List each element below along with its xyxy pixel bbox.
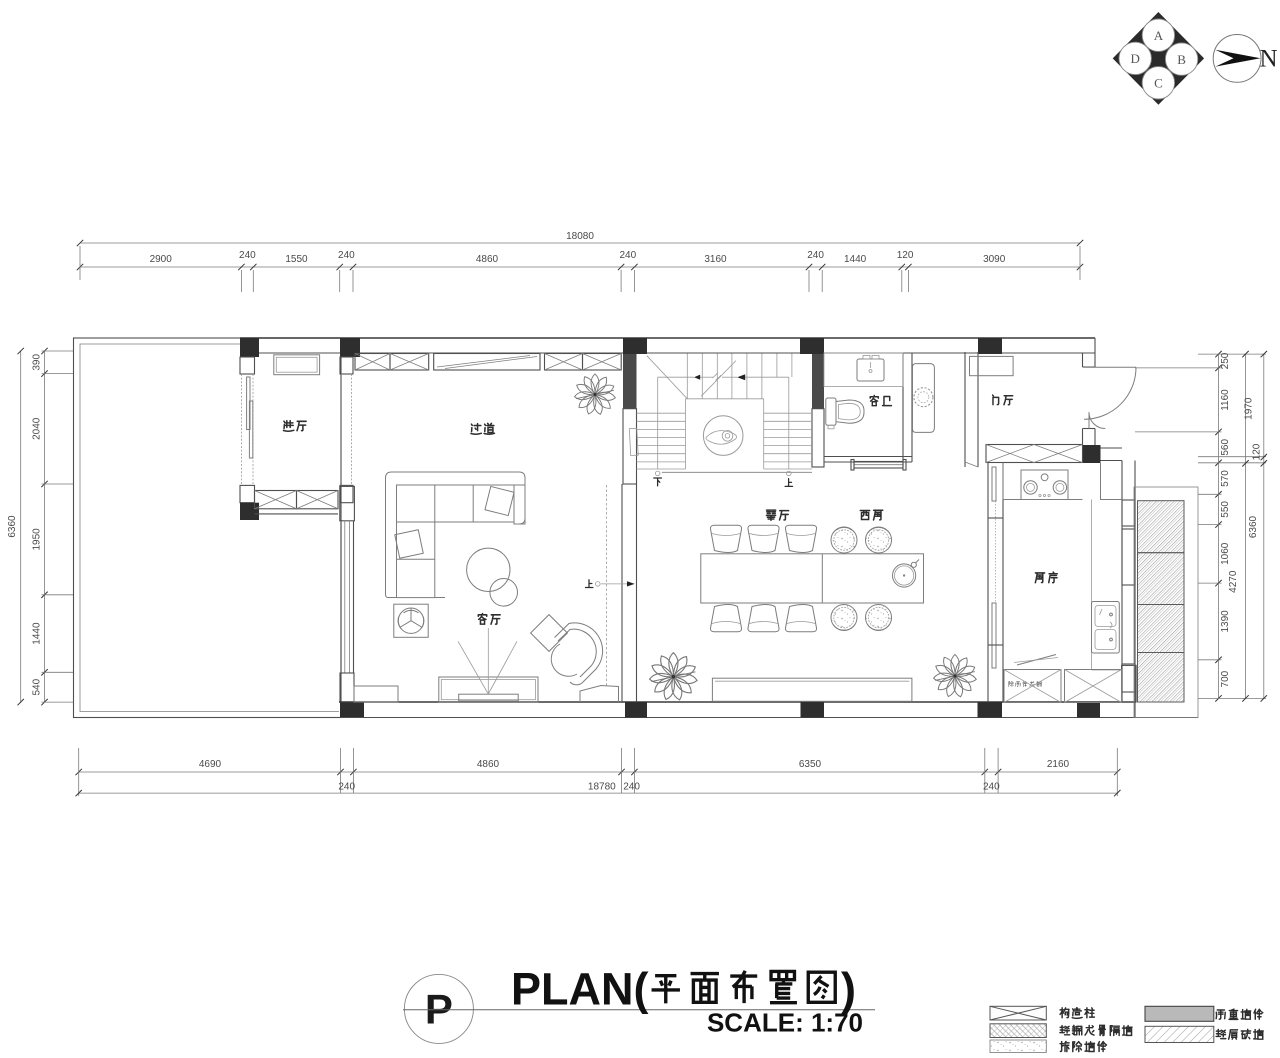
svg-text:240: 240	[239, 250, 256, 261]
svg-text:6360: 6360	[1248, 515, 1259, 538]
svg-text:2900: 2900	[150, 254, 173, 265]
svg-text:240: 240	[619, 250, 636, 261]
svg-text:3090: 3090	[983, 254, 1006, 265]
svg-text:570: 570	[1220, 470, 1231, 487]
svg-text:2040: 2040	[32, 417, 43, 440]
svg-text:18080: 18080	[566, 231, 594, 242]
svg-text:D: D	[1131, 51, 1140, 66]
svg-text:1950: 1950	[32, 528, 43, 551]
svg-text:1160: 1160	[1220, 389, 1231, 411]
svg-text:1440: 1440	[844, 254, 867, 265]
svg-text:4860: 4860	[477, 759, 500, 770]
svg-text:PLAN(: PLAN(	[511, 964, 648, 1015]
svg-text:1440: 1440	[32, 622, 43, 645]
svg-text:1970: 1970	[1244, 397, 1255, 420]
svg-text:240: 240	[807, 250, 824, 261]
svg-text:N: N	[1259, 46, 1277, 73]
svg-text:240: 240	[623, 782, 640, 793]
svg-text:C: C	[1154, 76, 1163, 91]
svg-text:3160: 3160	[704, 254, 727, 265]
svg-text:250: 250	[1220, 352, 1231, 369]
svg-text:1550: 1550	[285, 254, 308, 265]
svg-text:4690: 4690	[199, 759, 222, 770]
svg-text:A: A	[1154, 28, 1164, 43]
svg-text:6360: 6360	[7, 515, 18, 538]
svg-text:4860: 4860	[476, 254, 499, 265]
svg-text:390: 390	[32, 354, 43, 371]
svg-text:120: 120	[897, 250, 914, 261]
svg-text:B: B	[1177, 52, 1186, 67]
svg-text:240: 240	[983, 782, 1000, 793]
svg-text:1060: 1060	[1220, 542, 1231, 565]
svg-text:6350: 6350	[799, 759, 822, 770]
svg-text:540: 540	[32, 678, 43, 695]
svg-text:240: 240	[338, 250, 355, 261]
svg-text:240: 240	[338, 782, 355, 793]
svg-text:700: 700	[1220, 670, 1231, 687]
svg-text:1390: 1390	[1220, 610, 1231, 633]
svg-text:SCALE: 1:70: SCALE: 1:70	[707, 1008, 863, 1038]
svg-text:P: P	[425, 986, 453, 1033]
svg-text:120: 120	[1252, 443, 1263, 460]
svg-text:4270: 4270	[1228, 570, 1239, 593]
svg-text:560: 560	[1220, 439, 1231, 456]
svg-text:18780: 18780	[588, 782, 616, 793]
svg-text:550: 550	[1220, 501, 1231, 518]
svg-text:2160: 2160	[1047, 759, 1070, 770]
